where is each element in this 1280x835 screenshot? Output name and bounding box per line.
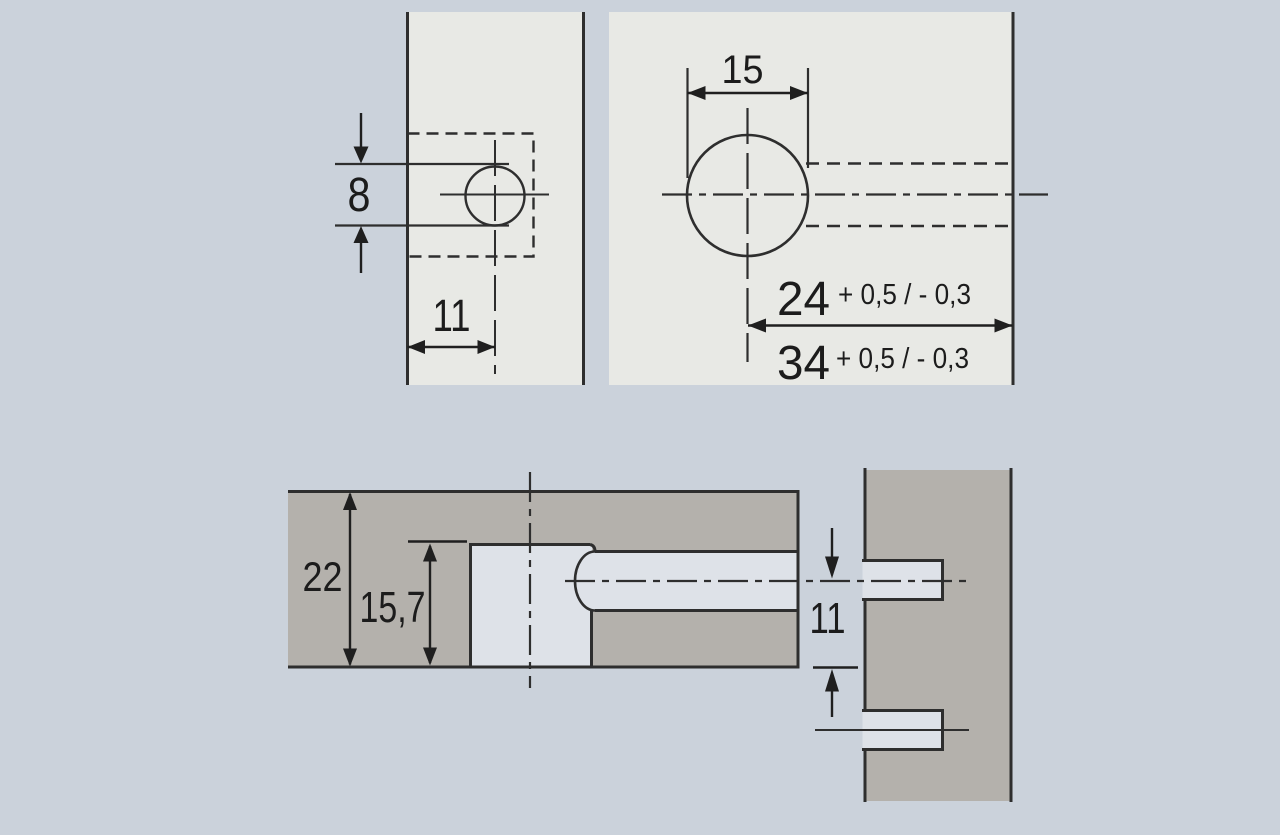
dim157-label: 15,7 xyxy=(360,583,426,632)
technical-drawing-canvas: 8 11 15 24 + 0,5 / - 0,3 34 + 0,5 / - 0, xyxy=(0,0,1280,835)
dim24-label: 24 xyxy=(777,273,830,326)
face-panel-fill xyxy=(609,12,1013,385)
dim22-label: 22 xyxy=(303,553,343,600)
drawing-svg: 8 11 15 24 + 0,5 / - 0,3 34 + 0,5 / - 0, xyxy=(0,0,1280,835)
mating-panel-fill xyxy=(866,470,1010,801)
dim24-tolerance: + 0,5 / - 0,3 xyxy=(838,279,971,311)
dim11-side-label: 11 xyxy=(433,290,471,341)
dim34-label: 34 xyxy=(777,337,830,390)
dim15-label: 15 xyxy=(722,48,764,92)
face-view: 15 24 + 0,5 / - 0,3 34 + 0,5 / - 0,3 xyxy=(609,12,1048,390)
dim8-label: 8 xyxy=(348,169,371,222)
dim34-tolerance: + 0,5 / - 0,3 xyxy=(836,343,969,375)
dim11-axis-label: 11 xyxy=(810,594,846,643)
